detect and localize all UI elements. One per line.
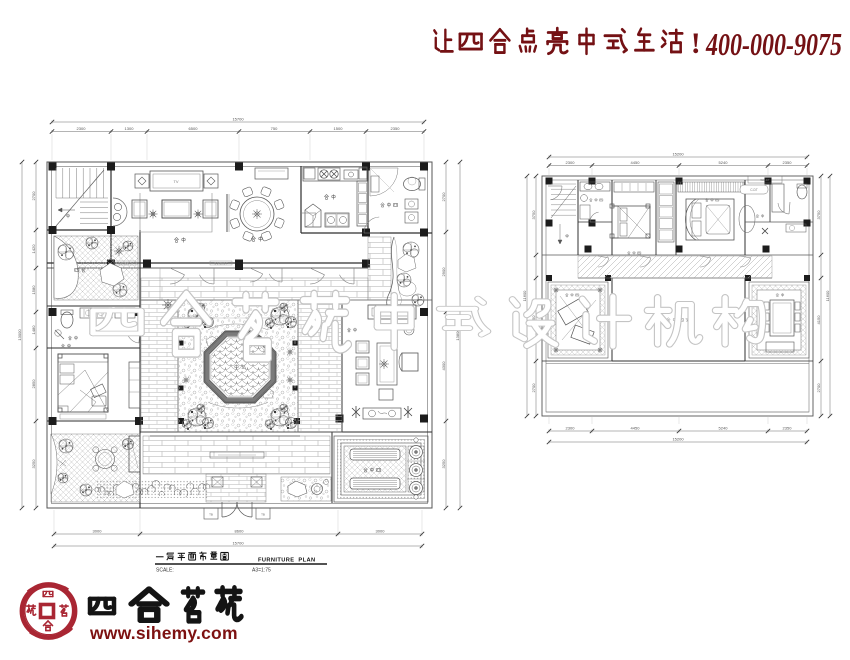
svg-text:5240: 5240: [719, 426, 729, 431]
svg-text:3750: 3750: [531, 210, 536, 220]
svg-text:4450: 4450: [631, 160, 641, 165]
svg-text:3000: 3000: [376, 529, 386, 534]
svg-text:15200: 15200: [672, 152, 684, 157]
svg-text:WC-DT: WC-DT: [760, 178, 770, 182]
svg-text:11600: 11600: [825, 290, 830, 302]
svg-text:4450: 4450: [631, 426, 641, 431]
svg-text:2900: 2900: [441, 267, 446, 277]
svg-text:SCALE:: SCALE:: [156, 568, 174, 574]
svg-text:15700: 15700: [232, 541, 244, 546]
svg-text:5240: 5240: [719, 160, 729, 165]
svg-text:!: !: [691, 27, 701, 60]
svg-text:4150: 4150: [816, 315, 821, 325]
svg-text:400-000-9075: 400-000-9075: [705, 26, 842, 62]
svg-text:2850: 2850: [31, 379, 36, 389]
svg-text:2300: 2300: [77, 126, 87, 131]
svg-text:6500: 6500: [189, 126, 199, 131]
svg-text:3250: 3250: [31, 459, 36, 469]
svg-text:www.sihemy.com: www.sihemy.com: [89, 623, 238, 643]
svg-text:750: 750: [271, 126, 278, 131]
svg-text:TV: TV: [173, 179, 178, 184]
svg-text:FURNITURE PLAN: FURNITURE PLAN: [258, 558, 316, 564]
svg-text:1500: 1500: [334, 126, 344, 131]
svg-text:1580: 1580: [31, 285, 36, 295]
svg-text:1420: 1420: [31, 244, 36, 254]
svg-text:A3=1:75: A3=1:75: [252, 568, 271, 574]
svg-text:2350: 2350: [783, 160, 793, 165]
svg-text:2700: 2700: [816, 383, 821, 393]
svg-text:1480: 1480: [31, 325, 36, 335]
svg-text:3000: 3000: [93, 529, 103, 534]
svg-text:TB: TB: [261, 513, 265, 517]
svg-text:15700: 15700: [232, 117, 244, 122]
svg-text:8600: 8600: [235, 529, 245, 534]
svg-text:TB: TB: [209, 513, 213, 517]
svg-text:2350: 2350: [783, 426, 793, 431]
svg-text:2700: 2700: [531, 383, 536, 393]
svg-text:2300: 2300: [566, 160, 576, 165]
svg-text:1300: 1300: [125, 126, 135, 131]
svg-text:3250: 3250: [441, 459, 446, 469]
svg-text:15200: 15200: [672, 437, 684, 442]
svg-text:C-2400 D-F: C-2400 D-F: [214, 261, 228, 265]
svg-text:2700: 2700: [441, 192, 446, 202]
svg-text:2700: 2700: [31, 191, 36, 201]
svg-text:11600: 11600: [522, 290, 527, 302]
svg-text:4300: 4300: [441, 361, 446, 371]
svg-text:3750: 3750: [816, 210, 821, 220]
svg-text:C-DT: C-DT: [750, 188, 758, 192]
svg-text:2300: 2300: [566, 426, 576, 431]
svg-text:2350: 2350: [391, 126, 401, 131]
svg-text:13000: 13000: [17, 329, 22, 341]
